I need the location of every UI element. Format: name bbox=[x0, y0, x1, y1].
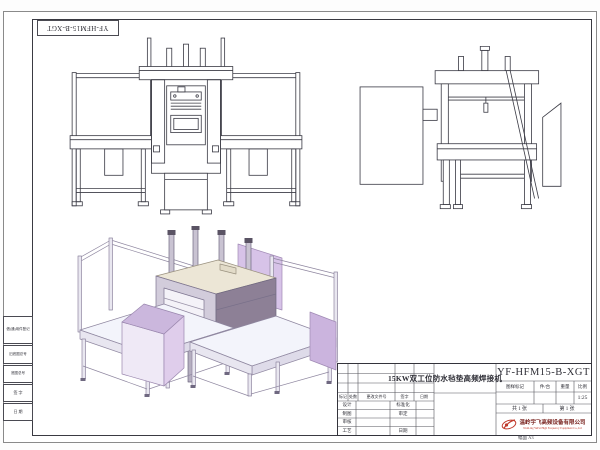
role-approve: 审定 bbox=[390, 410, 416, 419]
corner-drawing-number: YF-HFM15-B-XGT bbox=[47, 24, 108, 32]
strip-borrowed-parts-register: 借(通)用件登记 bbox=[3, 316, 33, 344]
role-standardize: 标准化 bbox=[390, 401, 416, 410]
role-design: 设计 bbox=[338, 401, 356, 410]
strip-signature: 签 字 bbox=[3, 384, 33, 402]
cad-sheet: { "sheet": { "corner_label": "YF-HFM15-B… bbox=[0, 0, 600, 450]
corner-drawing-number-box: YF-HFM15-B-XGT bbox=[37, 20, 119, 36]
rev-header-docno: 更改文件号 bbox=[358, 393, 395, 402]
rev-header-sign: 签字 bbox=[395, 393, 414, 402]
sheet-size-label: 幅面 A3 bbox=[518, 435, 534, 441]
isometric-drawing bbox=[70, 226, 344, 400]
drawing-number: YF-HFM15-B-XGT bbox=[496, 364, 591, 381]
company-logo-icon bbox=[501, 418, 517, 431]
strip-date: 日 期 bbox=[3, 403, 33, 421]
rev-header-count: 处数 bbox=[348, 393, 358, 402]
isometric-view bbox=[70, 226, 344, 400]
role-process: 工艺 bbox=[338, 427, 356, 436]
mark-header-unit: 件/台 bbox=[534, 381, 556, 392]
front-elevation-view bbox=[64, 36, 308, 217]
company-block: 温岭宇飞高频设备有限公司 WenLing YuFei High Frequenc… bbox=[496, 413, 591, 435]
sheet-index: 第 1 张 bbox=[543, 404, 591, 413]
strip-master-no: 底图总号 bbox=[3, 365, 33, 383]
product-title: 15KW双工位防水毡垫高频焊接机 bbox=[394, 364, 496, 393]
title-block: 标记 处数 更改文件号 签字 日期 设计 制图 审核 工艺 标准化 审定 日期 … bbox=[337, 363, 592, 436]
role-check: 审核 bbox=[338, 418, 356, 427]
side-view-drawing bbox=[356, 46, 564, 211]
rev-header-mark: 标记 bbox=[338, 393, 348, 402]
company-text: 温岭宇飞高频设备有限公司 WenLing YuFei High Frequenc… bbox=[519, 418, 585, 430]
company-name-cn: 温岭宇飞高频设备有限公司 bbox=[519, 418, 585, 426]
front-view-drawing bbox=[64, 36, 308, 217]
role-date: 日期 bbox=[390, 427, 416, 436]
sheet-total: 共 1 张 bbox=[496, 404, 543, 413]
side-elevation-view bbox=[356, 46, 564, 211]
company-name-en: WenLing YuFei High Frequency Equipment C… bbox=[523, 427, 582, 430]
strip-old-master-no: 旧底图总号 bbox=[3, 345, 33, 364]
role-draft: 制图 bbox=[338, 410, 356, 419]
mark-header-scale: 比例 bbox=[574, 381, 591, 392]
rev-header-date: 日期 bbox=[414, 393, 434, 402]
mark-header-weight: 重量 bbox=[556, 381, 574, 392]
scale-value: 1:25 bbox=[574, 392, 591, 404]
